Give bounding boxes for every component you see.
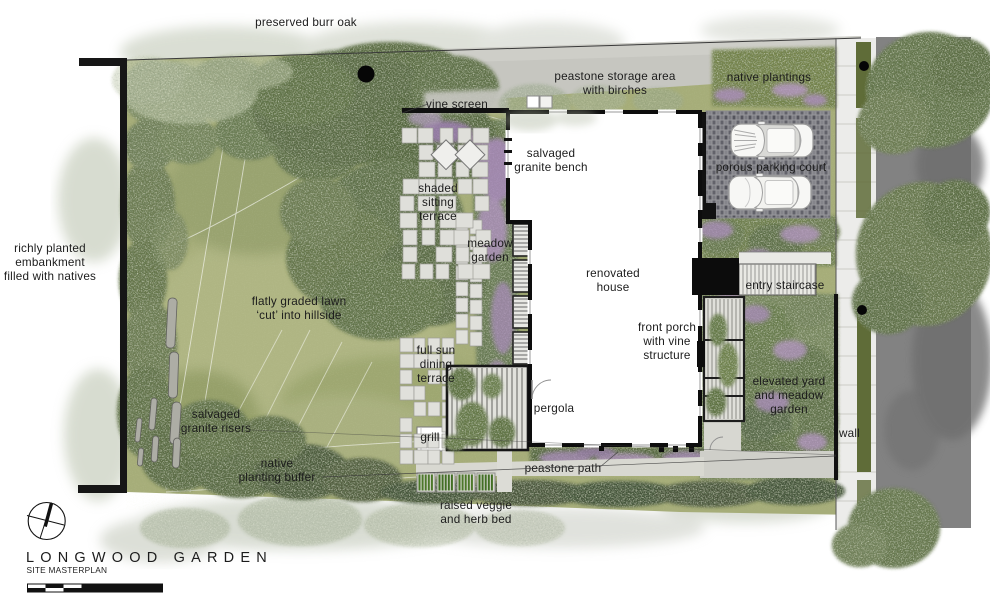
svg-text:with birches: with birches: [582, 84, 647, 97]
svg-text:terrace: terrace: [419, 210, 457, 223]
svg-text:granite bench: granite bench: [514, 161, 587, 174]
svg-text:full sun: full sun: [417, 344, 456, 357]
svg-text:native: native: [261, 457, 293, 470]
svg-text:raised veggie: raised veggie: [440, 499, 512, 512]
svg-text:salvaged: salvaged: [192, 408, 240, 421]
svg-text:terrace: terrace: [417, 372, 455, 385]
svg-text:vine screen: vine screen: [426, 98, 488, 111]
svg-text:and meadow: and meadow: [755, 389, 824, 402]
svg-text:SITE MASTERPLAN: SITE MASTERPLAN: [27, 565, 108, 575]
svg-text:dining: dining: [420, 358, 452, 371]
svg-text:richly planted: richly planted: [14, 242, 86, 255]
svg-text:shaded: shaded: [418, 182, 458, 195]
svg-text:garden: garden: [770, 403, 808, 416]
svg-text:embankment: embankment: [15, 256, 85, 269]
svg-text:salvaged: salvaged: [527, 147, 575, 160]
svg-text:and herb bed: and herb bed: [440, 513, 511, 526]
svg-text:entry staircase: entry staircase: [746, 279, 825, 292]
svg-text:renovated: renovated: [586, 267, 640, 280]
svg-text:pergola: pergola: [534, 402, 575, 415]
svg-text:wall: wall: [838, 427, 860, 440]
svg-text:house: house: [597, 281, 630, 294]
svg-text:LONGWOOD GARDEN: LONGWOOD GARDEN: [26, 550, 273, 566]
svg-text:native plantings: native plantings: [727, 71, 811, 84]
svg-text:porous parking court: porous parking court: [716, 161, 827, 174]
svg-text:meadow: meadow: [467, 237, 513, 250]
svg-text:flatly graded lawn: flatly graded lawn: [252, 295, 347, 308]
svg-text:peastone storage area: peastone storage area: [554, 70, 675, 83]
svg-text:preserved burr oak: preserved burr oak: [255, 16, 357, 29]
svg-text:structure: structure: [643, 349, 690, 362]
svg-text:with vine: with vine: [642, 335, 690, 348]
svg-text:planting buffer: planting buffer: [239, 471, 316, 484]
svg-text:granite risers: granite risers: [181, 422, 251, 435]
svg-text:‘cut’ into hillside: ‘cut’ into hillside: [256, 309, 341, 322]
svg-text:front porch: front porch: [638, 321, 696, 334]
svg-text:elevated yard: elevated yard: [753, 375, 826, 388]
svg-text:filled with natives: filled with natives: [4, 270, 96, 283]
svg-text:sitting: sitting: [422, 196, 454, 209]
svg-text:garden: garden: [471, 251, 509, 264]
